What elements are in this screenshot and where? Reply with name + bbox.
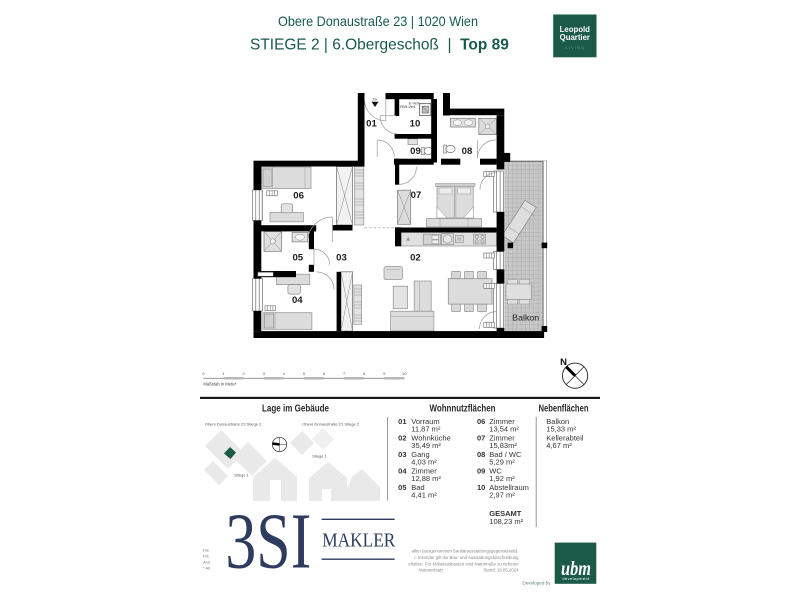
- svg-text:Obere Donaustraße 23 Stiege 2: Obere Donaustraße 23 Stiege 2: [205, 422, 262, 427]
- svg-text:Die: Die: [203, 548, 210, 553]
- svg-text:04: 04: [292, 295, 303, 306]
- svg-text:01: 01: [398, 417, 406, 426]
- svg-text:10: 10: [477, 483, 485, 492]
- svg-text:09: 09: [410, 146, 421, 157]
- svg-text:Obere Donaustraße 21 Stiege 2: Obere Donaustraße 21 Stiege 2: [302, 422, 359, 427]
- svg-text:STIEGE 2 | 6.Obergeschoß | T: STIEGE 2 | 6.Obergeschoß | Top 89: [250, 37, 509, 54]
- svg-text:10: 10: [402, 371, 407, 376]
- svg-text:ehalten. Für Möbelausbauten si: ehalten. Für Möbelausbauten sind Naturma…: [408, 561, 519, 566]
- svg-text:4: 4: [283, 371, 286, 376]
- svg-text:06: 06: [293, 191, 304, 202]
- svg-text:Stand: 16.05.2024: Stand: 16.05.2024: [483, 568, 519, 573]
- svg-text:13,54 m²: 13,54 m²: [489, 425, 519, 434]
- svg-text:1: 1: [222, 371, 225, 376]
- svg-text:06: 06: [477, 417, 485, 426]
- svg-text:01: 01: [366, 119, 377, 130]
- svg-text:2: 2: [242, 371, 245, 376]
- svg-text:Nutzwertsatz: Nutzwertsatz: [419, 568, 444, 573]
- svg-text:Quartier: Quartier: [560, 33, 590, 42]
- svg-text:FBH-Vert.: FBH-Vert.: [400, 105, 416, 109]
- svg-text:3SI: 3SI: [225, 499, 311, 586]
- svg-text:07: 07: [477, 434, 485, 443]
- svg-text:05: 05: [398, 483, 406, 492]
- svg-text:* Ab: * Ab: [203, 566, 211, 571]
- svg-text:03: 03: [398, 450, 406, 459]
- svg-text:29x: 29x: [372, 98, 378, 102]
- svg-text:Stiege 1: Stiege 1: [234, 473, 249, 478]
- svg-text:Stiege 1: Stiege 1: [312, 454, 327, 459]
- svg-text:Maßstab in Meter: Maßstab in Meter: [203, 382, 236, 387]
- svg-text:12,88 m²: 12,88 m²: [411, 474, 441, 483]
- svg-text:1,92 m²: 1,92 m²: [489, 474, 515, 483]
- svg-text:7: 7: [343, 371, 346, 376]
- svg-text:15,33 m²: 15,33 m²: [546, 425, 576, 434]
- svg-text:Balkon: Balkon: [512, 313, 539, 323]
- svg-text:5: 5: [303, 371, 306, 376]
- svg-text:Nebenflächen: Nebenflächen: [539, 404, 589, 415]
- svg-text:Flä: Flä: [203, 554, 209, 559]
- svg-text:02: 02: [398, 434, 406, 443]
- svg-text:4,67 m²: 4,67 m²: [546, 441, 572, 450]
- svg-text:6: 6: [323, 371, 326, 376]
- svg-text:allen (ausgenommen Sanitärauss: allen (ausgenommen Sanitärausstattungsge…: [412, 549, 519, 554]
- svg-text:5,29 m²: 5,29 m²: [489, 458, 515, 467]
- svg-text:Lage im Gebäude: Lage im Gebäude: [262, 404, 329, 415]
- svg-text:Developed by: Developed by: [522, 580, 551, 585]
- svg-text:0: 0: [202, 371, 205, 376]
- svg-text:108,23 m²: 108,23 m²: [489, 517, 523, 526]
- svg-text:4,41 m²: 4,41 m²: [411, 491, 437, 500]
- svg-text:9: 9: [383, 371, 386, 376]
- svg-text:09: 09: [477, 467, 485, 476]
- svg-text:8: 8: [363, 371, 366, 376]
- svg-text:35,49 m²: 35,49 m²: [411, 441, 441, 450]
- svg-text:10: 10: [410, 119, 421, 130]
- svg-text:2,97 m²: 2,97 m²: [489, 491, 515, 500]
- svg-text:11,87 m²: 11,87 m²: [411, 425, 441, 434]
- svg-text:And: And: [203, 560, 210, 565]
- svg-text:development: development: [562, 576, 590, 581]
- svg-text:02: 02: [410, 252, 421, 263]
- svg-text:04: 04: [398, 467, 407, 476]
- svg-text:07: 07: [411, 190, 422, 201]
- svg-text:3: 3: [263, 371, 266, 376]
- svg-text:r. Insonder gilt die Bau- und: r. Insonder gilt die Bau- und Ausstattun…: [414, 555, 519, 560]
- svg-text:MAKLER: MAKLER: [322, 530, 395, 552]
- svg-text:15,83m²: 15,83m²: [489, 441, 517, 450]
- svg-text:05: 05: [292, 252, 303, 263]
- svg-text:N: N: [560, 357, 567, 368]
- svg-text:03: 03: [336, 253, 347, 264]
- svg-text:08: 08: [477, 450, 485, 459]
- svg-text:Wohnnutzflächen: Wohnnutzflächen: [430, 404, 496, 415]
- svg-text:LIVING: LIVING: [565, 46, 585, 50]
- svg-text:4,03 m²: 4,03 m²: [411, 458, 437, 467]
- svg-text:Obere Donaustraße 23 | 1020 Wi: Obere Donaustraße 23 | 1020 Wien: [278, 14, 478, 29]
- svg-text:08: 08: [462, 146, 473, 157]
